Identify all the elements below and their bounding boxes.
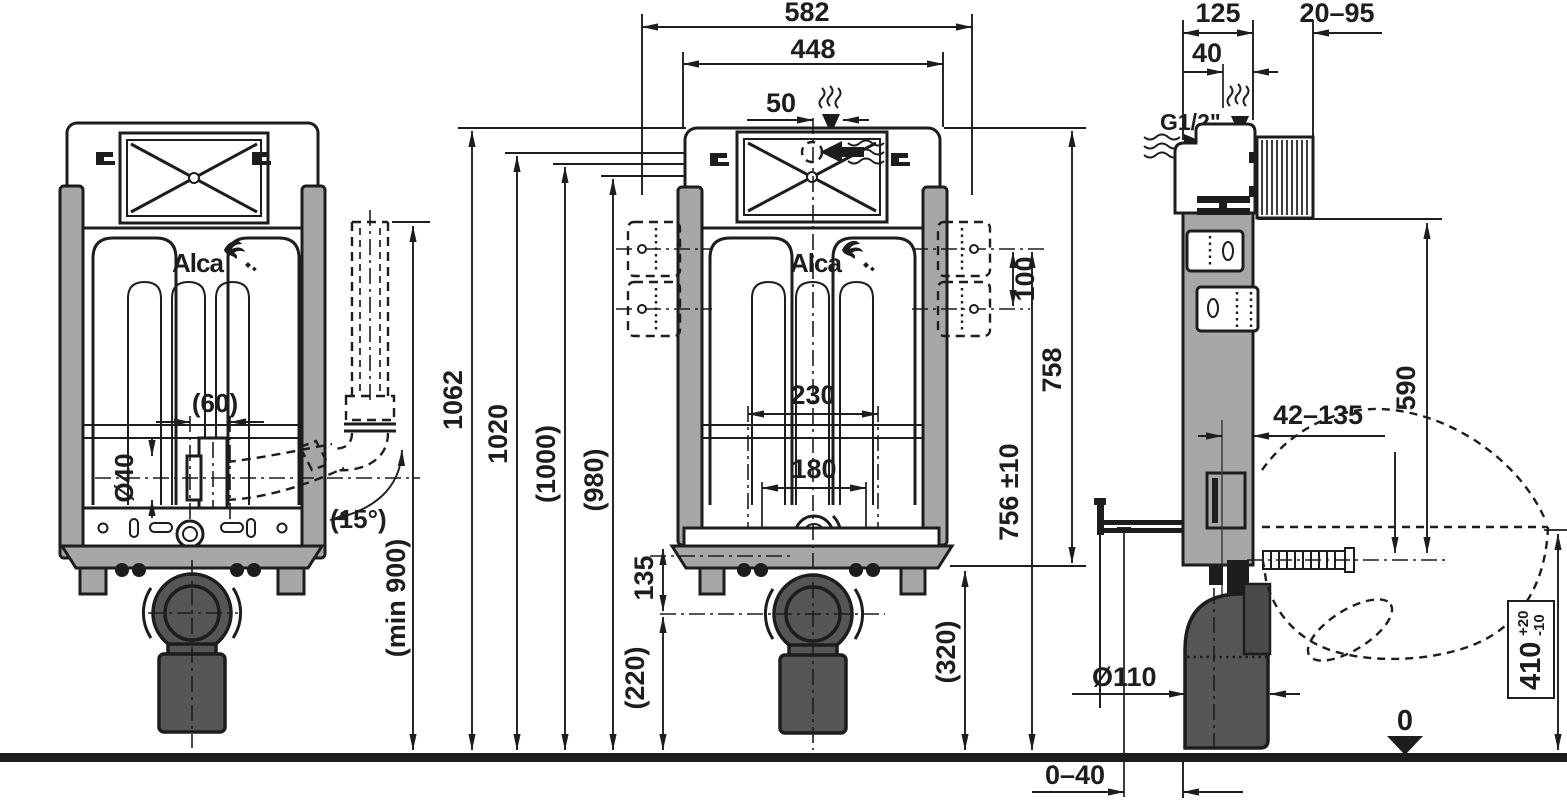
dim-inlet-offset: 50 bbox=[766, 88, 796, 118]
water-supply: G1/2" bbox=[1144, 84, 1255, 213]
right-rail bbox=[302, 186, 325, 558]
floor-level-marker-icon bbox=[1387, 736, 1423, 755]
dim-base-height: (320) bbox=[931, 620, 961, 683]
drain-elbow bbox=[765, 575, 862, 733]
base-beam bbox=[672, 546, 952, 568]
dim-drain-drop: 135 bbox=[629, 555, 659, 600]
technical-drawing-page: Alca bbox=[0, 0, 1567, 800]
dim-plate-height: 756 ±10 bbox=[994, 443, 1024, 540]
dim-spigot-offset: (60) bbox=[192, 388, 238, 418]
flush-pipe-dashed bbox=[332, 222, 396, 470]
cistern-installation-drawing: Alca bbox=[0, 0, 1567, 800]
dim-frame-width: 448 bbox=[790, 34, 835, 64]
dim-floor-gap: 0–40 bbox=[1045, 760, 1105, 790]
drain-elbow-side bbox=[1185, 584, 1270, 752]
dim-drain-height: (220) bbox=[620, 646, 650, 709]
left-view: (60) Ø40 (15°) (min 900) bbox=[60, 123, 430, 750]
floor-level-marker: 0 bbox=[1387, 705, 1423, 755]
dim-adjust-range: 42–135 bbox=[1273, 400, 1363, 430]
dim-total-width: 582 bbox=[784, 0, 829, 27]
dim-bracket-spacing: 100 bbox=[1010, 256, 1040, 301]
floor-gap-dimension: 0–40 bbox=[1032, 760, 1243, 798]
dim-bolt-span-inner: 180 bbox=[791, 454, 836, 484]
floor-level-label: 0 bbox=[1397, 705, 1413, 737]
dim-bowl-height: 410 bbox=[1515, 642, 1547, 690]
dim-min-height: (min 900) bbox=[381, 539, 411, 658]
finished-wall-section bbox=[1249, 137, 1313, 218]
dim-elbow-angle: (15°) bbox=[330, 504, 387, 534]
left-foot bbox=[80, 568, 106, 594]
water-flow-icon bbox=[1144, 135, 1180, 140]
right-foot bbox=[901, 568, 925, 594]
dim-frame-depth: 125 bbox=[1195, 0, 1240, 28]
dim-pipe-diameter: Ø40 bbox=[109, 453, 139, 502]
lower-bracket-section bbox=[1197, 287, 1258, 331]
dim-wall-thickness: 20–95 bbox=[1299, 0, 1374, 28]
floor-line bbox=[0, 753, 1567, 762]
dim-bowl-tol-plus: +20 bbox=[1515, 611, 1532, 636]
base-tray bbox=[684, 528, 939, 546]
dim-drain-diameter: Ø110 bbox=[1092, 662, 1157, 692]
dim-height-1020: 1020 bbox=[483, 404, 513, 464]
dim-inlet-setback: 40 bbox=[1192, 38, 1222, 68]
left-rail bbox=[678, 187, 702, 545]
dim-frame-height: 758 bbox=[1037, 347, 1067, 392]
toilet-bowl-outline bbox=[1262, 409, 1548, 672]
left-rail bbox=[60, 186, 83, 558]
upper-height-dimension: 590 bbox=[1258, 219, 1442, 553]
left-foot bbox=[700, 568, 724, 594]
bowl-connection-pipe bbox=[1247, 548, 1448, 572]
dim-total-height: 1062 bbox=[438, 370, 468, 430]
front-view: 1062 1020 (1000) (980) 582 448 50 bbox=[438, 0, 1086, 750]
bowl-height-dimension: 410 +20 -10 bbox=[1508, 530, 1567, 750]
right-rail bbox=[923, 187, 947, 545]
side-view: 125 20–95 40 G1/2" bbox=[1032, 0, 1567, 798]
dim-upper-height: 590 bbox=[1391, 365, 1421, 410]
dim-height-980: (980) bbox=[579, 448, 609, 511]
dim-height-1000: (1000) bbox=[531, 425, 561, 503]
upper-bracket-section bbox=[1187, 231, 1243, 271]
right-foot bbox=[278, 568, 304, 594]
front-right-dimensions: 100 758 756 ±10 (320) bbox=[931, 128, 1086, 750]
dim-bowl-tol-minus: -10 bbox=[1531, 614, 1548, 636]
